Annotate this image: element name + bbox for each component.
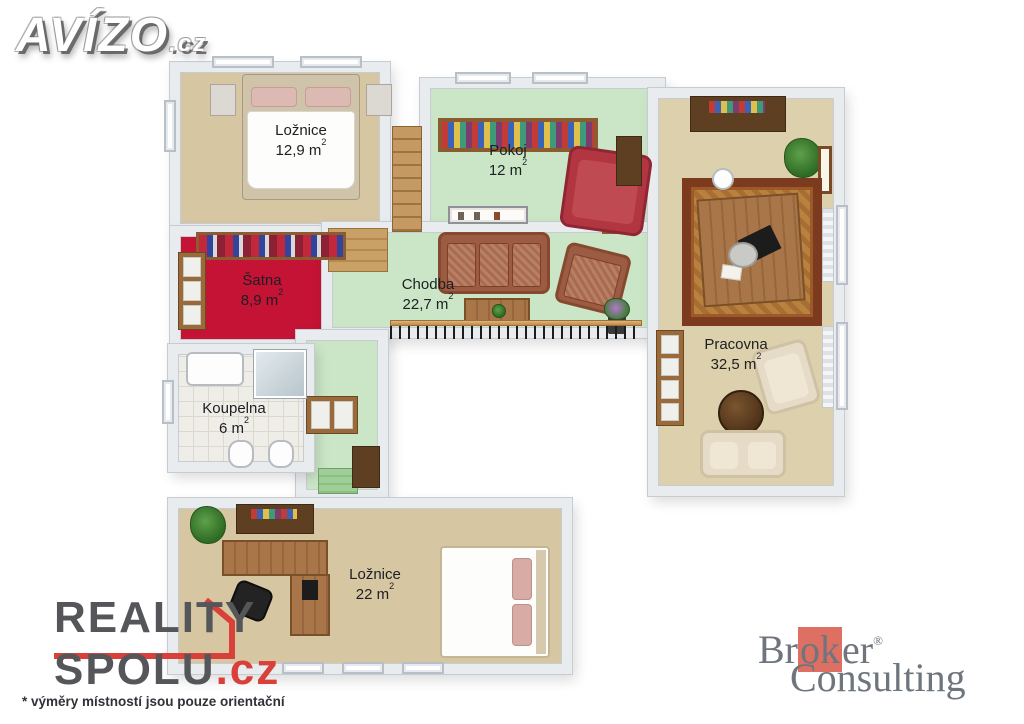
- room-area-value: 22 m: [356, 586, 389, 603]
- window: [342, 662, 384, 674]
- reality-spolu-tld: .cz: [216, 645, 281, 694]
- staircase: [392, 126, 422, 232]
- broker-registered-mark: ®: [873, 633, 883, 648]
- room-area: 22 m2: [349, 585, 401, 605]
- tall-bookcase: [656, 330, 684, 426]
- palm-plant: [784, 138, 822, 178]
- room-name: Chodba: [402, 276, 455, 295]
- room-area-sup: 2: [756, 351, 761, 361]
- shelf-slot: [661, 335, 679, 354]
- avizo-logo-text: AVÍZO: [16, 9, 169, 62]
- broker-consulting-logo: Broker® Consulting: [758, 630, 966, 698]
- floorplan-stage: Ložnice 12,9 m2 Pokoj 12 m2 Šatna 8,9 m2…: [0, 0, 1024, 724]
- reality-spolu-line2: SPOLU.cz: [54, 648, 280, 692]
- display-item: [494, 212, 500, 220]
- broker-line2: Consulting: [790, 658, 966, 698]
- shelf-slot: [661, 403, 679, 422]
- avizo-logo-tld: .cz: [169, 30, 207, 57]
- window: [455, 72, 511, 84]
- window: [836, 205, 848, 285]
- shelf-slot: [334, 401, 353, 429]
- room-area-value: 22,7 m: [403, 296, 449, 313]
- sofa-cushion: [748, 442, 776, 469]
- room-area-sup: 2: [389, 581, 394, 591]
- room-area: 22,7 m2: [402, 295, 455, 315]
- room-area-sup: 2: [448, 291, 453, 301]
- room-area: 12 m2: [489, 161, 527, 181]
- window: [532, 72, 588, 84]
- reality-spolu-line2-text: SPOLU: [54, 645, 216, 694]
- single-bed: [440, 546, 550, 658]
- room-area-sup: 2: [522, 157, 527, 167]
- hall-cabinet: [352, 446, 380, 488]
- room-area-value: 32,5 m: [711, 356, 757, 373]
- shelf-slot: [311, 401, 330, 429]
- desk-chair: [728, 242, 758, 268]
- room-label-pokoj: Pokoj 12 m2: [489, 142, 527, 181]
- curtain: [822, 208, 834, 282]
- shelf-slot: [661, 380, 679, 399]
- avizo-logo: AVÍZO.cz: [16, 8, 207, 63]
- pillow: [512, 604, 532, 646]
- sofa-cushion: [479, 243, 508, 287]
- curtain: [822, 326, 834, 408]
- table-plant: [492, 304, 506, 318]
- window: [836, 322, 848, 410]
- display-item: [458, 212, 464, 220]
- reality-spolu-logo: REALITY SPOLU.cz: [20, 596, 280, 692]
- room-area-value: 12 m: [489, 162, 522, 179]
- headboard: [536, 550, 546, 654]
- room-label-loznice-dolni: Ložnice 22 m2: [349, 566, 401, 605]
- reality-spolu-line1: REALITY: [54, 596, 280, 640]
- window: [300, 56, 362, 68]
- pillow: [512, 558, 532, 600]
- sofa-cushion: [710, 442, 738, 469]
- room-label-chodba: Chodba 22,7 m2: [402, 276, 455, 315]
- room-area: 32,5 m2: [704, 355, 767, 375]
- wall-display-cabinet: [448, 206, 528, 224]
- computer-monitor: [302, 580, 318, 600]
- shelf-slot: [661, 358, 679, 377]
- dresser: [690, 96, 786, 132]
- railing-balusters: [390, 326, 642, 339]
- room-label-pracovna: Pracovna 32,5 m2: [704, 336, 767, 375]
- floor-lamp: [712, 168, 734, 190]
- area-disclaimer-footnote: * výměry místností jsou pouze orientační: [22, 694, 285, 709]
- gallery-railing: [390, 320, 642, 339]
- flowers: [604, 298, 630, 320]
- side-cabinet: [616, 136, 642, 186]
- window: [402, 662, 444, 674]
- sofa-cream: [700, 430, 786, 478]
- armchair-seat: [763, 352, 810, 405]
- sofa: [438, 232, 550, 294]
- hall-shelf: [306, 396, 358, 434]
- pillow: [305, 87, 351, 107]
- display-item: [474, 212, 480, 220]
- room-area-sup: 2: [321, 137, 326, 147]
- nightstand: [366, 84, 392, 116]
- sofa-cushion: [512, 243, 541, 287]
- books: [709, 101, 765, 113]
